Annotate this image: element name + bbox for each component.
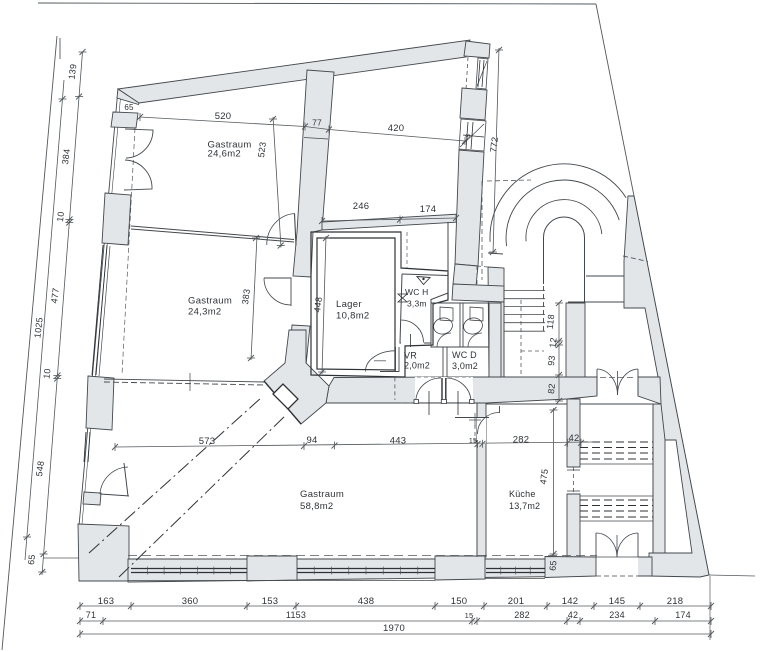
svg-text:82: 82 [546,383,557,395]
svg-text:153: 153 [262,596,278,607]
svg-text:174: 174 [675,610,691,620]
svg-text:42: 42 [568,610,578,620]
svg-text:145: 145 [609,596,625,607]
svg-text:384: 384 [60,148,72,165]
svg-text:282: 282 [513,435,529,446]
svg-text:VR: VR [404,351,417,361]
svg-text:Küche: Küche [509,489,536,499]
svg-text:94: 94 [307,435,318,446]
svg-text:360: 360 [182,596,198,607]
svg-text:448: 448 [312,296,324,313]
svg-text:Gastraum: Gastraum [188,296,232,307]
svg-text:139: 139 [67,63,79,80]
svg-text:24,6m2: 24,6m2 [208,149,242,160]
svg-text:10: 10 [41,368,52,380]
svg-text:438: 438 [358,596,374,607]
svg-text:3,3m: 3,3m [407,299,427,309]
svg-text:420: 420 [388,123,404,134]
svg-text:443: 443 [390,436,406,447]
svg-text:12: 12 [547,337,558,349]
svg-text:58,8m2: 58,8m2 [300,501,334,512]
svg-text:772: 772 [488,136,500,153]
svg-text:Lager: Lager [336,299,362,310]
svg-text:201: 201 [508,596,524,607]
svg-text:520: 520 [215,111,231,122]
svg-text:71: 71 [86,610,96,620]
svg-text:1970: 1970 [383,623,405,634]
svg-text:24,3m2: 24,3m2 [188,306,222,317]
svg-text:142: 142 [562,596,578,607]
svg-text:42: 42 [569,433,580,444]
svg-text:15: 15 [469,438,477,445]
svg-text:150: 150 [451,596,467,607]
svg-text:383: 383 [240,288,252,305]
svg-text:548: 548 [34,460,46,477]
svg-text:10: 10 [55,211,66,223]
svg-text:65: 65 [26,554,37,566]
svg-text:218: 218 [667,596,683,607]
svg-text:15: 15 [465,611,474,620]
svg-text:523: 523 [256,141,268,158]
svg-text:573: 573 [199,436,215,447]
svg-text:475: 475 [538,468,550,485]
svg-text:WC H: WC H [405,287,428,297]
svg-text:282: 282 [514,610,530,620]
svg-text:WC D: WC D [452,350,477,360]
svg-text:246: 246 [353,201,369,212]
svg-text:2,0m2: 2,0m2 [404,361,430,371]
svg-text:Gastraum: Gastraum [300,489,344,500]
svg-text:174: 174 [420,204,436,215]
svg-text:118: 118 [545,314,557,330]
svg-text:3,0m2: 3,0m2 [452,361,478,371]
svg-text:65: 65 [124,103,134,112]
svg-text:77: 77 [312,118,322,128]
svg-text:234: 234 [609,610,625,620]
svg-text:10,8m2: 10,8m2 [336,311,370,322]
svg-text:13,7m2: 13,7m2 [509,501,540,511]
svg-text:1153: 1153 [286,610,306,620]
svg-text:477: 477 [49,287,61,304]
svg-text:93: 93 [546,355,557,367]
svg-text:65: 65 [547,560,558,572]
svg-text:163: 163 [98,596,114,607]
